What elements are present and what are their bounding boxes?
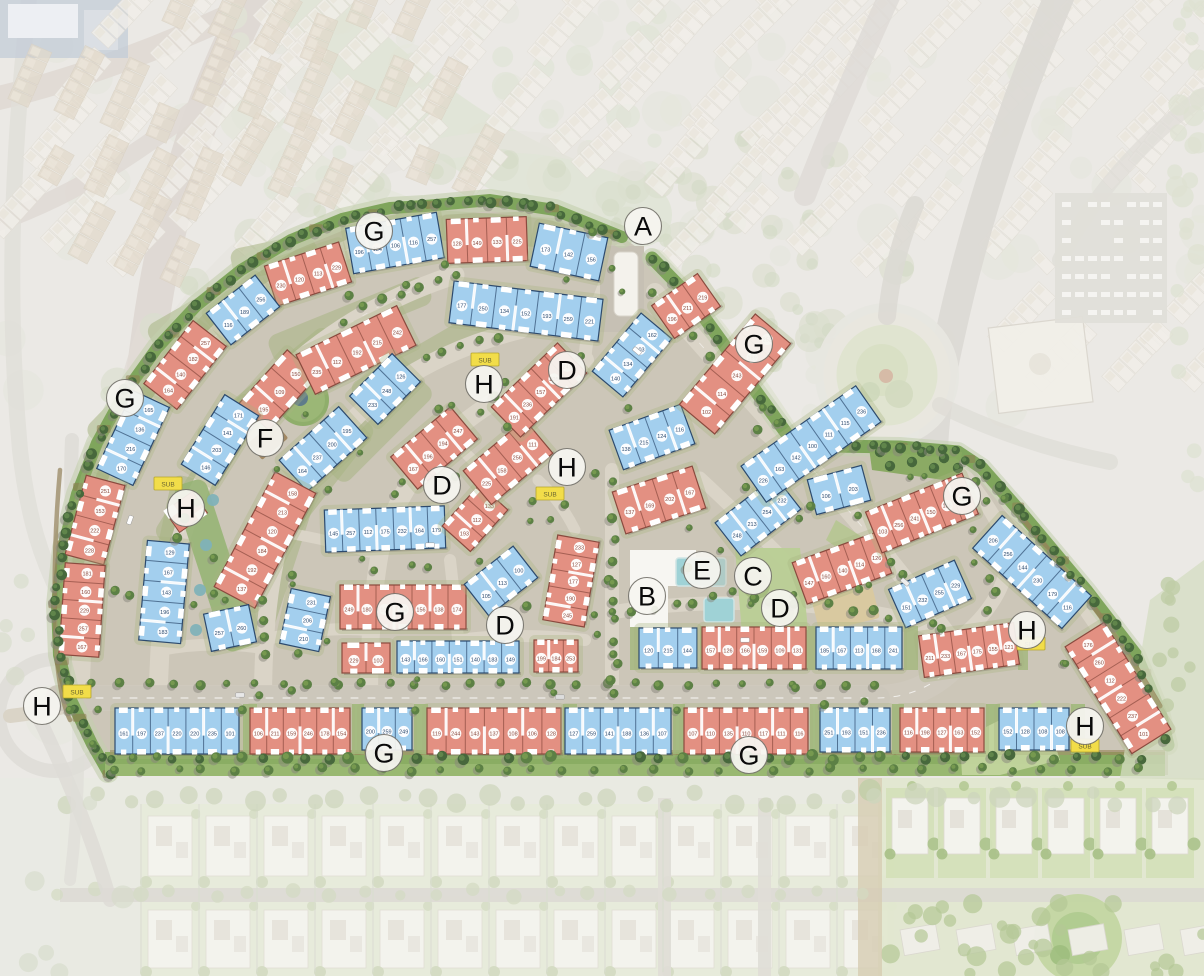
svg-text:231: 231 — [307, 600, 316, 606]
svg-text:149: 149 — [472, 241, 481, 247]
svg-text:177: 177 — [457, 304, 466, 310]
svg-text:196: 196 — [160, 610, 169, 616]
svg-text:113: 113 — [314, 271, 323, 277]
svg-text:251: 251 — [824, 731, 833, 737]
svg-text:246: 246 — [304, 732, 313, 738]
svg-text:254: 254 — [762, 510, 771, 516]
svg-text:233: 233 — [941, 654, 950, 660]
svg-text:233: 233 — [575, 546, 584, 552]
svg-text:247: 247 — [453, 429, 462, 435]
svg-text:106: 106 — [391, 244, 400, 250]
svg-text:127: 127 — [937, 731, 946, 737]
svg-text:256: 256 — [513, 456, 522, 462]
svg-text:257: 257 — [346, 531, 355, 537]
svg-text:F: F — [257, 424, 274, 454]
svg-text:175: 175 — [973, 649, 982, 655]
svg-text:G: G — [363, 217, 384, 247]
svg-text:152: 152 — [971, 731, 980, 737]
svg-text:H: H — [1017, 616, 1037, 646]
svg-text:167: 167 — [685, 491, 694, 497]
svg-text:193: 193 — [460, 532, 469, 538]
svg-text:200: 200 — [366, 730, 375, 736]
svg-text:SUB: SUB — [161, 482, 174, 489]
svg-text:106: 106 — [528, 732, 537, 738]
svg-text:181: 181 — [82, 572, 91, 578]
svg-text:G: G — [743, 330, 764, 360]
svg-text:229: 229 — [349, 659, 358, 665]
svg-text:256: 256 — [894, 523, 903, 529]
svg-text:H: H — [557, 453, 577, 483]
svg-text:144: 144 — [1018, 565, 1027, 571]
svg-text:171: 171 — [234, 413, 243, 419]
svg-text:138: 138 — [621, 447, 630, 453]
svg-text:151: 151 — [453, 658, 462, 664]
svg-text:124: 124 — [657, 434, 666, 440]
svg-text:109: 109 — [275, 390, 284, 396]
svg-text:121: 121 — [1004, 645, 1013, 651]
svg-text:168: 168 — [872, 649, 881, 655]
svg-text:135: 135 — [724, 732, 733, 738]
svg-text:225: 225 — [512, 240, 521, 246]
svg-text:219: 219 — [698, 295, 707, 301]
svg-text:228: 228 — [85, 548, 94, 554]
svg-text:199: 199 — [537, 657, 546, 663]
svg-text:102: 102 — [702, 410, 711, 416]
svg-text:G: G — [114, 384, 135, 414]
svg-text:D: D — [432, 471, 452, 501]
svg-text:105: 105 — [482, 594, 491, 600]
svg-text:256: 256 — [256, 297, 265, 303]
svg-text:248: 248 — [382, 389, 391, 395]
svg-text:C: C — [743, 562, 763, 592]
svg-text:112: 112 — [1106, 679, 1115, 685]
svg-text:222: 222 — [1117, 696, 1126, 702]
svg-text:192: 192 — [353, 350, 362, 356]
svg-text:215: 215 — [373, 341, 382, 347]
svg-text:100: 100 — [808, 444, 817, 450]
svg-text:165: 165 — [144, 408, 153, 414]
svg-text:229: 229 — [951, 583, 960, 589]
svg-text:129: 129 — [165, 550, 174, 556]
svg-text:126: 126 — [872, 556, 881, 562]
svg-text:134: 134 — [500, 309, 509, 315]
svg-text:140: 140 — [471, 658, 480, 664]
svg-text:137: 137 — [489, 732, 498, 738]
svg-text:106: 106 — [254, 732, 263, 738]
svg-text:167: 167 — [837, 649, 846, 655]
svg-text:111: 111 — [825, 433, 833, 439]
svg-text:166: 166 — [419, 658, 428, 664]
svg-text:140: 140 — [838, 568, 847, 574]
svg-text:192: 192 — [247, 568, 256, 574]
svg-text:116: 116 — [795, 732, 804, 738]
svg-text:169: 169 — [645, 504, 654, 510]
svg-text:160: 160 — [81, 590, 90, 596]
svg-text:196: 196 — [668, 317, 677, 323]
svg-text:188: 188 — [622, 732, 631, 738]
svg-text:157: 157 — [536, 390, 545, 396]
svg-text:149: 149 — [506, 658, 515, 664]
svg-text:112: 112 — [472, 518, 481, 524]
svg-text:167: 167 — [957, 652, 966, 658]
svg-text:216: 216 — [126, 447, 135, 453]
svg-text:143: 143 — [401, 658, 410, 664]
svg-text:101: 101 — [1139, 732, 1148, 738]
svg-text:120: 120 — [268, 530, 277, 536]
svg-text:126: 126 — [396, 375, 405, 381]
svg-text:229: 229 — [332, 265, 341, 271]
svg-text:106: 106 — [822, 494, 831, 500]
svg-text:160: 160 — [821, 575, 830, 581]
svg-text:120: 120 — [295, 278, 304, 284]
svg-text:180: 180 — [362, 608, 371, 614]
svg-text:H: H — [32, 692, 52, 722]
svg-text:257: 257 — [201, 341, 210, 347]
svg-text:245: 245 — [563, 613, 572, 619]
svg-text:145: 145 — [329, 531, 338, 537]
svg-text:257: 257 — [215, 631, 224, 637]
svg-text:112: 112 — [333, 360, 342, 366]
svg-text:178: 178 — [320, 732, 329, 738]
svg-text:A: A — [634, 212, 652, 242]
svg-text:161: 161 — [119, 732, 128, 738]
svg-text:119: 119 — [432, 732, 441, 738]
svg-text:194: 194 — [439, 442, 448, 448]
svg-text:127: 127 — [569, 732, 578, 738]
svg-text:167: 167 — [164, 570, 173, 576]
svg-text:114: 114 — [717, 392, 726, 398]
svg-text:141: 141 — [223, 431, 232, 437]
svg-text:128: 128 — [547, 732, 556, 738]
svg-text:190: 190 — [566, 596, 575, 602]
svg-text:138: 138 — [434, 608, 443, 614]
svg-text:110: 110 — [706, 732, 715, 738]
svg-text:213: 213 — [278, 511, 287, 517]
svg-text:200: 200 — [328, 442, 337, 448]
svg-text:211: 211 — [683, 306, 692, 312]
svg-text:242: 242 — [393, 331, 402, 337]
svg-text:235: 235 — [312, 370, 321, 376]
svg-text:226: 226 — [759, 479, 768, 485]
svg-text:215: 215 — [663, 649, 672, 655]
svg-text:156: 156 — [416, 608, 425, 614]
svg-text:G: G — [951, 482, 972, 512]
svg-text:203: 203 — [212, 448, 221, 454]
svg-text:131: 131 — [793, 649, 802, 655]
svg-text:143: 143 — [162, 590, 171, 596]
svg-text:241: 241 — [889, 649, 898, 655]
svg-text:101: 101 — [226, 732, 235, 738]
svg-text:157: 157 — [706, 649, 715, 655]
svg-text:182: 182 — [189, 357, 198, 363]
svg-text:236: 236 — [523, 403, 532, 409]
svg-text:D: D — [495, 611, 515, 641]
svg-text:232: 232 — [398, 529, 407, 535]
svg-text:108: 108 — [1056, 730, 1065, 736]
svg-text:115: 115 — [841, 421, 850, 427]
svg-text:256: 256 — [1003, 552, 1012, 558]
svg-text:B: B — [638, 582, 656, 612]
svg-text:120: 120 — [644, 649, 653, 655]
svg-text:116: 116 — [904, 731, 913, 737]
svg-text:G: G — [384, 598, 405, 628]
svg-text:151: 151 — [859, 731, 868, 737]
svg-text:108: 108 — [1038, 730, 1047, 736]
svg-text:237: 237 — [1128, 714, 1137, 720]
svg-text:225: 225 — [482, 481, 491, 487]
svg-text:107: 107 — [658, 732, 667, 738]
svg-text:179: 179 — [1048, 592, 1057, 598]
svg-text:164: 164 — [298, 469, 307, 475]
svg-text:142: 142 — [791, 456, 800, 462]
svg-text:151: 151 — [902, 605, 911, 611]
svg-text:166: 166 — [741, 649, 750, 655]
svg-text:162: 162 — [648, 333, 657, 339]
svg-text:152: 152 — [1003, 730, 1012, 736]
svg-text:249: 249 — [399, 730, 408, 736]
svg-text:160: 160 — [436, 658, 445, 664]
svg-text:206: 206 — [989, 539, 998, 545]
svg-text:191: 191 — [510, 415, 519, 421]
svg-text:D: D — [770, 594, 790, 624]
svg-text:183: 183 — [488, 658, 497, 664]
svg-text:H: H — [474, 370, 494, 400]
svg-text:108: 108 — [509, 732, 518, 738]
svg-text:244: 244 — [451, 732, 460, 738]
svg-text:142: 142 — [564, 253, 573, 259]
svg-text:202: 202 — [665, 497, 674, 503]
svg-text:193: 193 — [542, 314, 551, 320]
svg-text:185: 185 — [820, 649, 829, 655]
svg-text:109: 109 — [775, 649, 784, 655]
svg-text:103: 103 — [878, 530, 887, 536]
svg-text:156: 156 — [587, 257, 596, 263]
svg-text:243: 243 — [732, 374, 741, 380]
svg-text:114: 114 — [855, 562, 864, 568]
svg-text:163: 163 — [775, 467, 784, 473]
svg-text:193: 193 — [842, 731, 851, 737]
svg-text:152: 152 — [521, 312, 530, 318]
svg-text:127: 127 — [572, 563, 581, 569]
svg-text:128: 128 — [453, 242, 462, 248]
svg-text:196: 196 — [355, 250, 364, 256]
svg-text:176: 176 — [1083, 643, 1092, 649]
svg-text:143: 143 — [470, 732, 479, 738]
svg-text:112: 112 — [364, 530, 373, 536]
svg-text:241: 241 — [910, 517, 919, 523]
svg-text:H: H — [176, 494, 196, 524]
svg-text:113: 113 — [855, 649, 864, 655]
svg-text:229: 229 — [80, 608, 89, 614]
svg-text:253: 253 — [566, 657, 575, 663]
svg-text:220: 220 — [172, 732, 181, 738]
svg-text:259: 259 — [564, 317, 573, 323]
svg-text:197: 197 — [137, 732, 146, 738]
svg-text:D: D — [557, 356, 577, 386]
svg-text:183: 183 — [158, 630, 167, 636]
svg-text:150: 150 — [926, 510, 935, 516]
svg-text:184: 184 — [551, 657, 560, 663]
svg-text:SUB: SUB — [70, 690, 83, 697]
svg-text:236: 236 — [877, 731, 886, 737]
svg-text:211: 211 — [925, 656, 934, 662]
svg-text:259: 259 — [587, 732, 596, 738]
svg-text:213: 213 — [747, 522, 756, 528]
svg-text:117: 117 — [759, 732, 768, 738]
svg-text:H: H — [1075, 712, 1095, 742]
svg-text:153: 153 — [95, 509, 104, 515]
svg-text:SUB: SUB — [543, 492, 556, 499]
svg-text:134: 134 — [623, 362, 632, 368]
svg-text:255: 255 — [935, 591, 944, 597]
svg-text:116: 116 — [675, 428, 684, 434]
svg-text:136: 136 — [135, 427, 144, 433]
svg-text:154: 154 — [337, 732, 346, 738]
svg-text:144: 144 — [683, 649, 692, 655]
svg-text:164: 164 — [415, 528, 424, 534]
svg-text:150: 150 — [291, 372, 300, 378]
svg-text:155: 155 — [989, 647, 998, 653]
svg-text:137: 137 — [625, 510, 634, 516]
svg-text:147: 147 — [804, 581, 813, 587]
svg-text:184: 184 — [258, 549, 267, 555]
svg-text:141: 141 — [605, 732, 614, 738]
svg-text:170: 170 — [117, 466, 126, 472]
svg-text:G: G — [373, 739, 394, 769]
svg-text:111: 111 — [777, 732, 785, 738]
svg-text:116: 116 — [409, 240, 418, 246]
svg-text:SUB: SUB — [478, 358, 491, 365]
svg-text:140: 140 — [611, 377, 620, 383]
svg-text:137: 137 — [237, 587, 246, 593]
svg-text:257: 257 — [427, 237, 436, 243]
svg-text:146: 146 — [201, 466, 210, 472]
svg-text:232: 232 — [918, 598, 927, 604]
svg-text:236: 236 — [857, 410, 866, 416]
svg-text:116: 116 — [224, 323, 233, 329]
svg-text:G: G — [738, 741, 759, 771]
svg-text:113: 113 — [498, 581, 507, 587]
svg-text:257: 257 — [79, 627, 88, 633]
svg-text:196: 196 — [424, 454, 433, 460]
svg-text:222: 222 — [90, 529, 99, 535]
svg-text:140: 140 — [176, 373, 185, 379]
svg-text:175: 175 — [380, 530, 389, 536]
svg-text:116: 116 — [1063, 605, 1072, 611]
svg-text:251: 251 — [101, 489, 110, 495]
svg-text:230: 230 — [1033, 579, 1042, 585]
svg-text:195: 195 — [342, 429, 351, 435]
svg-text:249: 249 — [344, 608, 353, 614]
svg-text:E: E — [693, 556, 711, 586]
svg-text:203: 203 — [849, 487, 858, 493]
svg-text:167: 167 — [409, 467, 418, 473]
svg-text:107: 107 — [688, 732, 697, 738]
svg-text:133: 133 — [492, 240, 501, 246]
svg-text:159: 159 — [758, 649, 767, 655]
svg-text:158: 158 — [497, 468, 506, 474]
svg-text:210: 210 — [299, 637, 308, 643]
svg-text:235: 235 — [208, 732, 217, 738]
svg-text:126: 126 — [723, 649, 732, 655]
svg-text:100: 100 — [514, 568, 523, 574]
svg-text:177: 177 — [569, 580, 578, 586]
svg-text:167: 167 — [77, 645, 86, 651]
svg-text:164: 164 — [164, 388, 173, 394]
svg-text:230: 230 — [276, 284, 285, 290]
svg-text:215: 215 — [639, 441, 648, 447]
svg-text:233: 233 — [368, 403, 377, 409]
svg-text:237: 237 — [313, 456, 322, 462]
svg-text:260: 260 — [237, 626, 246, 632]
svg-text:198: 198 — [921, 731, 930, 737]
svg-text:173: 173 — [541, 248, 550, 254]
svg-text:128: 128 — [1021, 730, 1030, 736]
svg-text:136: 136 — [640, 732, 649, 738]
svg-text:260: 260 — [1095, 661, 1104, 667]
svg-text:158: 158 — [288, 491, 297, 497]
svg-text:237: 237 — [155, 732, 164, 738]
svg-text:103: 103 — [373, 659, 382, 665]
svg-text:220: 220 — [190, 732, 199, 738]
svg-text:248: 248 — [732, 534, 741, 540]
svg-text:159: 159 — [287, 732, 296, 738]
svg-text:111: 111 — [528, 443, 536, 449]
svg-text:189: 189 — [240, 310, 249, 316]
svg-text:221: 221 — [585, 319, 594, 325]
svg-text:174: 174 — [452, 608, 461, 614]
svg-text:250: 250 — [479, 306, 488, 312]
svg-text:211: 211 — [271, 732, 280, 738]
svg-text:163: 163 — [954, 731, 963, 737]
svg-text:206: 206 — [303, 619, 312, 625]
